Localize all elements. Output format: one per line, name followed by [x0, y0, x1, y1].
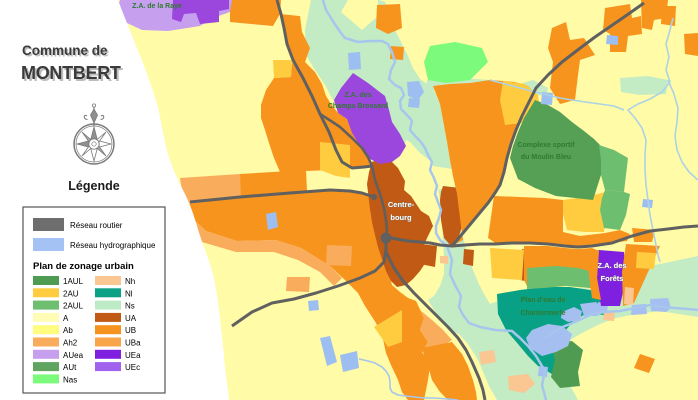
svg-text:UA: UA — [125, 314, 137, 323]
svg-text:2AU: 2AU — [63, 289, 79, 298]
svg-text:UB: UB — [125, 326, 136, 335]
svg-text:UBa: UBa — [125, 339, 141, 348]
svg-text:Nl: Nl — [125, 289, 133, 298]
svg-text:Légende: Légende — [68, 179, 119, 193]
svg-text:A: A — [63, 314, 69, 323]
svg-text:1AUL: 1AUL — [63, 277, 84, 286]
svg-text:bourg: bourg — [390, 213, 412, 222]
svg-text:Z.A. des: Z.A. des — [344, 92, 371, 99]
svg-text:du Moulin Bleu: du Moulin Bleu — [521, 154, 571, 161]
svg-text:UEa: UEa — [125, 351, 141, 360]
svg-text:AUea: AUea — [63, 351, 84, 360]
svg-text:Réseau routier: Réseau routier — [70, 221, 123, 230]
svg-text:MONTBERT: MONTBERT — [21, 63, 121, 83]
svg-text:Champs Brossard: Champs Brossard — [328, 103, 388, 110]
svg-text:Ah2: Ah2 — [63, 339, 78, 348]
svg-text:Forêts: Forêts — [601, 274, 624, 283]
svg-text:Plan d'eau de: Plan d'eau de — [521, 297, 566, 304]
svg-text:2AUL: 2AUL — [63, 302, 84, 311]
svg-text:Centre-: Centre- — [388, 200, 415, 209]
svg-text:AUt: AUt — [63, 363, 77, 372]
svg-text:Z.A. des: Z.A. des — [597, 261, 626, 270]
svg-text:Ns: Ns — [125, 302, 135, 311]
svg-text:Plan de zonage urbain: Plan de zonage urbain — [33, 261, 134, 272]
svg-text:Ab: Ab — [63, 326, 73, 335]
svg-text:UEc: UEc — [125, 363, 140, 372]
svg-text:Nh: Nh — [125, 277, 135, 286]
svg-text:Réseau hydrographique: Réseau hydrographique — [70, 241, 156, 250]
svg-text:Commune de: Commune de — [22, 43, 108, 58]
svg-text:Nas: Nas — [63, 375, 77, 384]
svg-text:Chantermerle: Chantermerle — [520, 310, 565, 317]
svg-text:Z.A. de la Raye: Z.A. de la Raye — [132, 3, 182, 10]
svg-text:Complexe sportif: Complexe sportif — [517, 142, 575, 149]
